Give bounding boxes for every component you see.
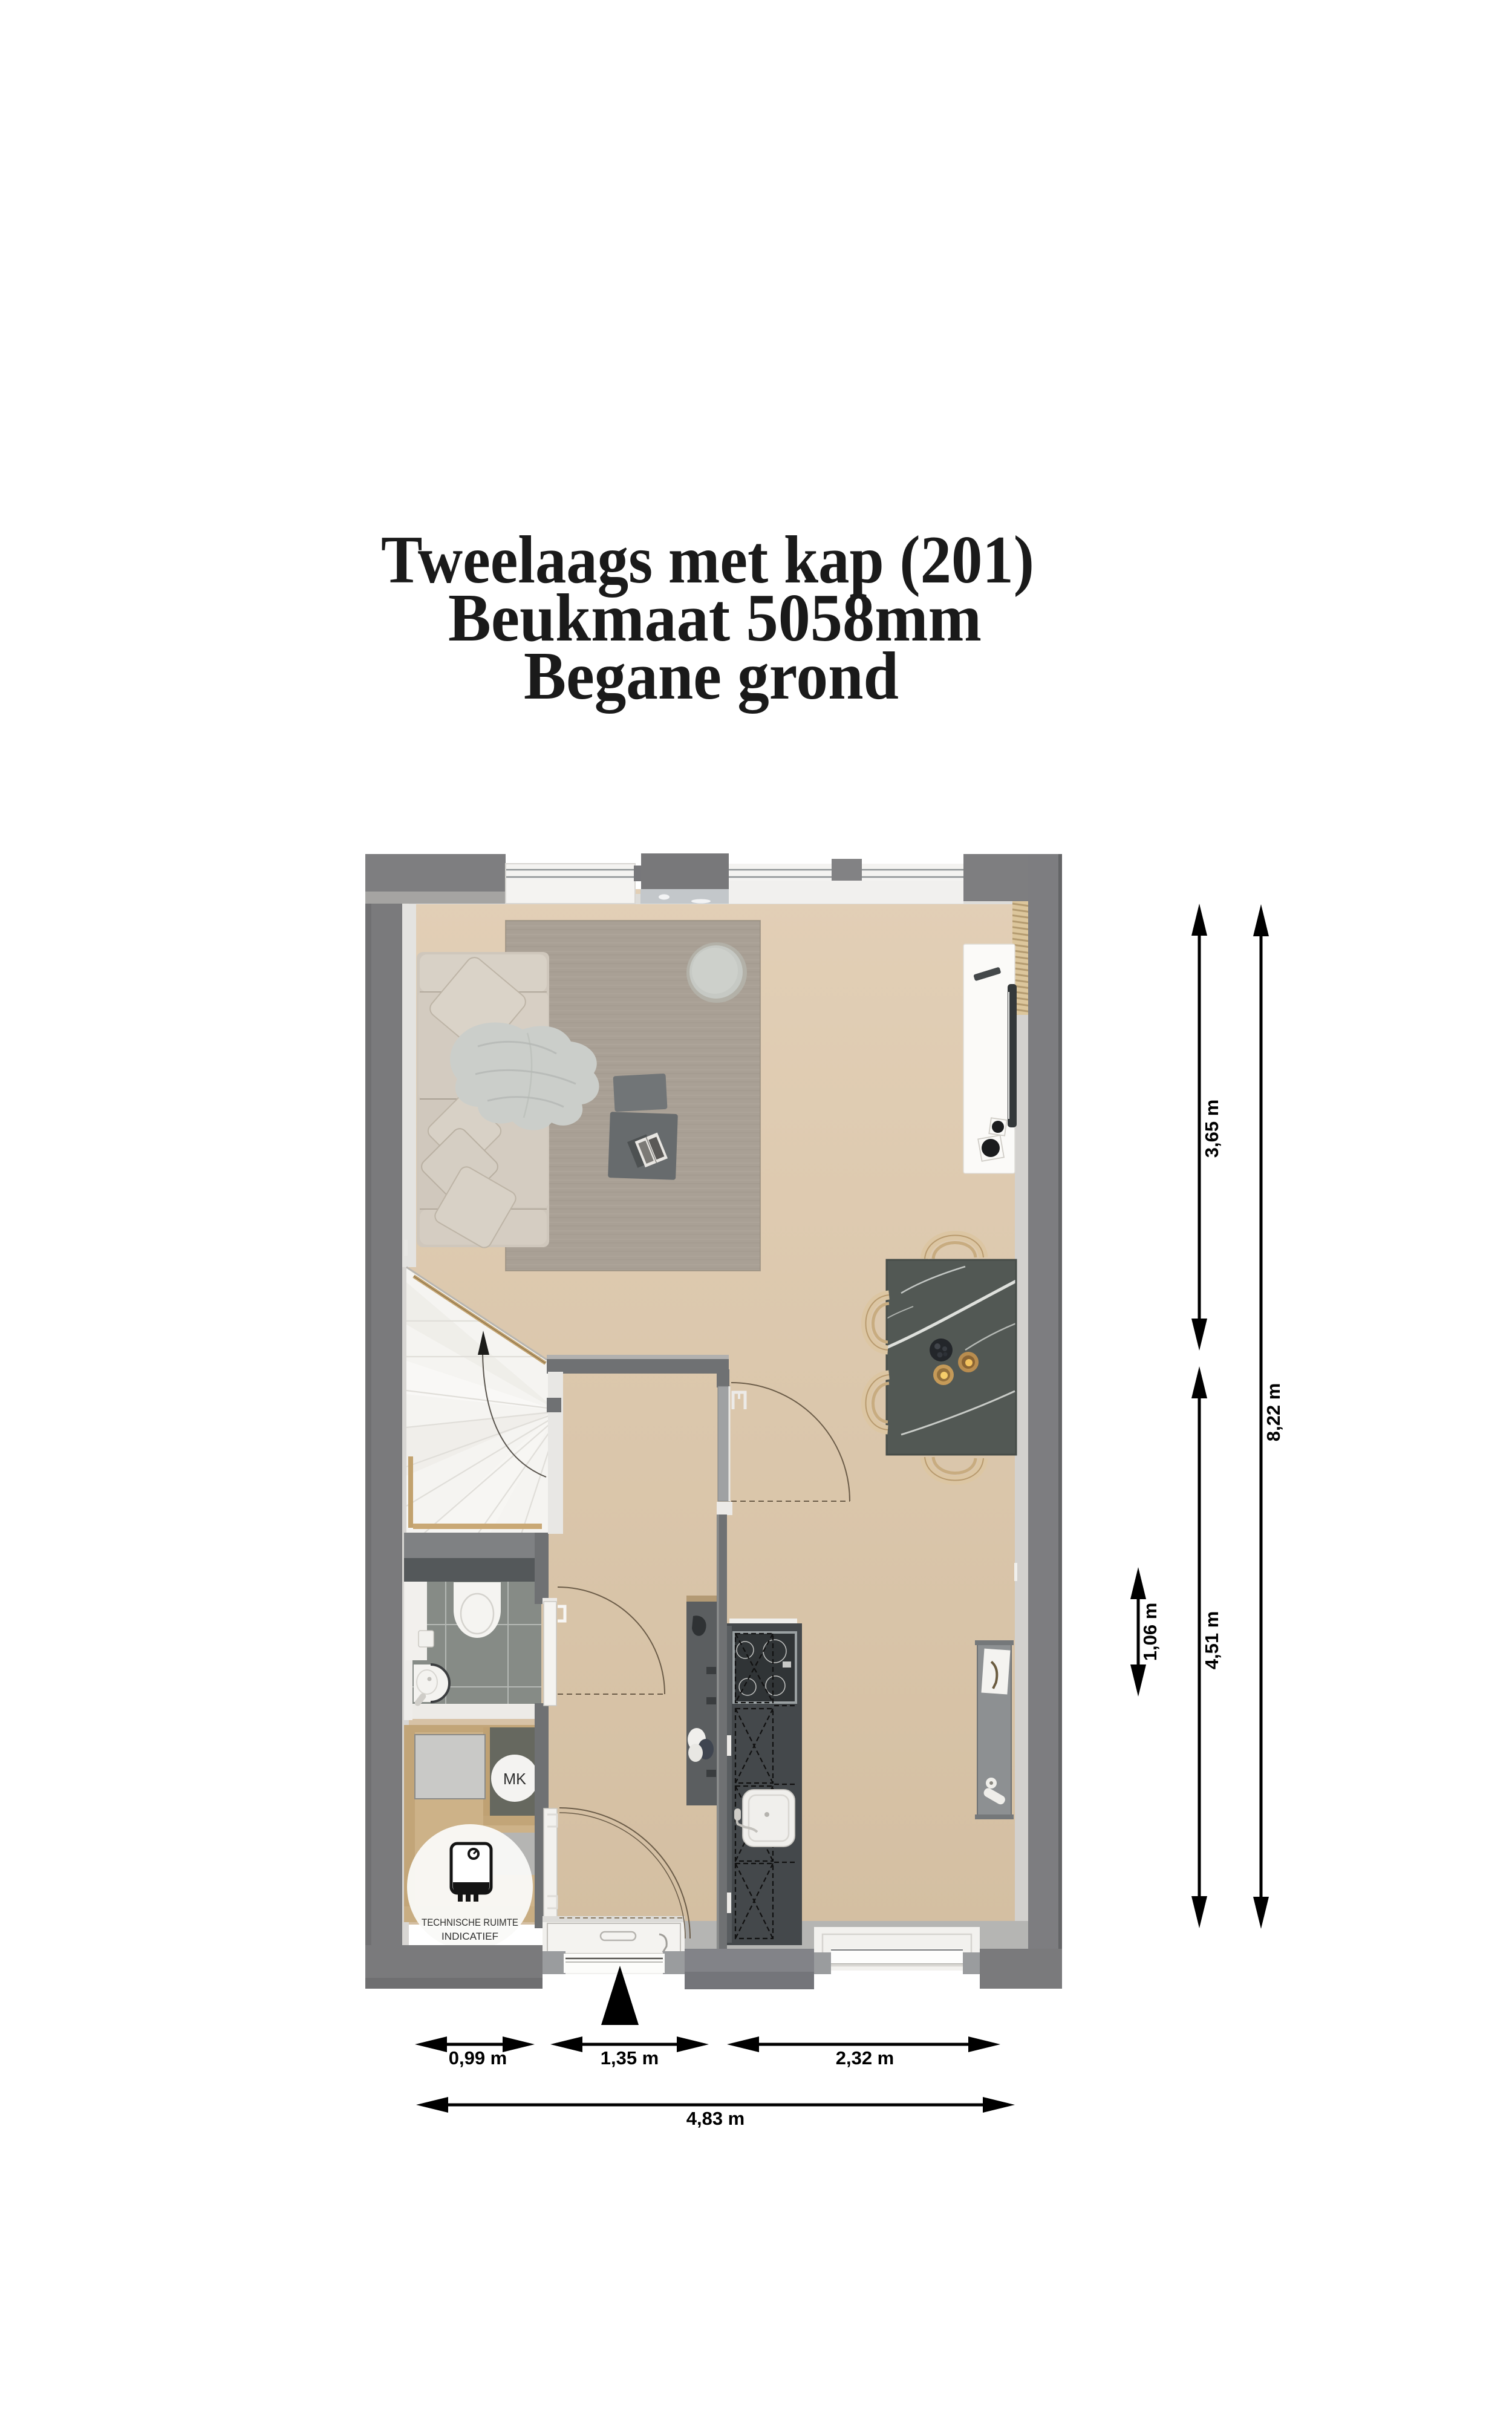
svg-text:4,51 m: 4,51 m [1201,1611,1222,1670]
svg-text:Begane grond: Begane grond [524,639,899,714]
svg-text:3,65 m: 3,65 m [1201,1100,1222,1158]
svg-text:0,99 m: 0,99 m [449,2047,507,2069]
svg-text:1,06 m: 1,06 m [1139,1603,1161,1661]
svg-text:1,35 m: 1,35 m [601,2047,659,2069]
svg-text:2,32 m: 2,32 m [836,2047,894,2069]
svg-text:MK: MK [503,1770,527,1788]
svg-text:4,83 m: 4,83 m [686,2108,745,2129]
svg-text:TECHNISCHE RUIMTE: TECHNISCHE RUIMTE [422,1917,518,1928]
svg-text:8,22 m: 8,22 m [1263,1383,1284,1442]
svg-text:INDICATIEF: INDICATIEF [442,1931,498,1942]
